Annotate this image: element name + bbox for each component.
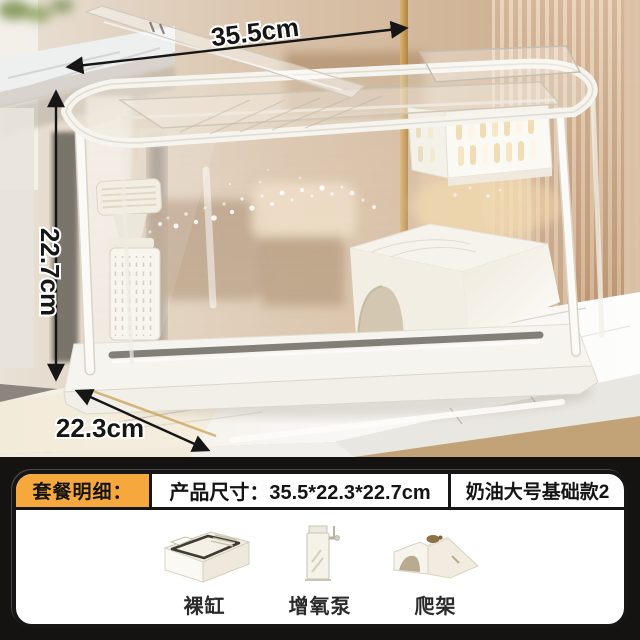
- package-detail-label: 套餐明细：: [16, 474, 152, 507]
- bare-tank-thumbnail: [155, 518, 255, 586]
- photo-scene: 35.5cm 22.7cm 22.3cm: [0, 0, 640, 457]
- kit-item-climbing-ramp: 爬架: [386, 518, 486, 619]
- oxygen-pump-thumbnail: [297, 518, 343, 586]
- product-photo: 35.5cm 22.7cm 22.3cm: [0, 0, 640, 457]
- variant-name-label: 奶油大号基础款2: [448, 474, 624, 507]
- product-listing-image: 35.5cm 22.7cm 22.3cm 套餐明细： 产品尺寸：35.5*22.…: [0, 0, 640, 640]
- kit-item-label: 增氧泵: [289, 590, 352, 619]
- package-detail-panel: 套餐明细： 产品尺寸：35.5*22.3*22.7cm 奶油大号基础款2: [12, 470, 628, 628]
- kit-item-label: 裸缸: [184, 590, 226, 619]
- kit-items-row: 裸缸 增氧泵: [16, 510, 624, 619]
- climbing-ramp-thumbnail: [386, 518, 486, 586]
- depth-dimension-label: 22.3cm: [56, 413, 144, 443]
- bare-tank-icon: [155, 520, 255, 586]
- kit-item-label: 爬架: [415, 590, 457, 619]
- product-size-label: 产品尺寸：35.5*22.3*22.7cm: [152, 474, 448, 507]
- climbing-ramp-icon: [386, 524, 486, 586]
- oxygen-pump-icon: [297, 520, 343, 586]
- kit-item-bare-tank: 裸缸: [155, 518, 255, 619]
- spec-panel-strip: 套餐明细： 产品尺寸：35.5*22.3*22.7cm 奶油大号基础款2: [0, 457, 640, 640]
- kit-item-oxygen-pump: 增氧泵: [289, 518, 352, 619]
- height-dimension-label: 22.7cm: [35, 228, 65, 316]
- panel-header-row: 套餐明细： 产品尺寸：35.5*22.3*22.7cm 奶油大号基础款2: [16, 474, 624, 510]
